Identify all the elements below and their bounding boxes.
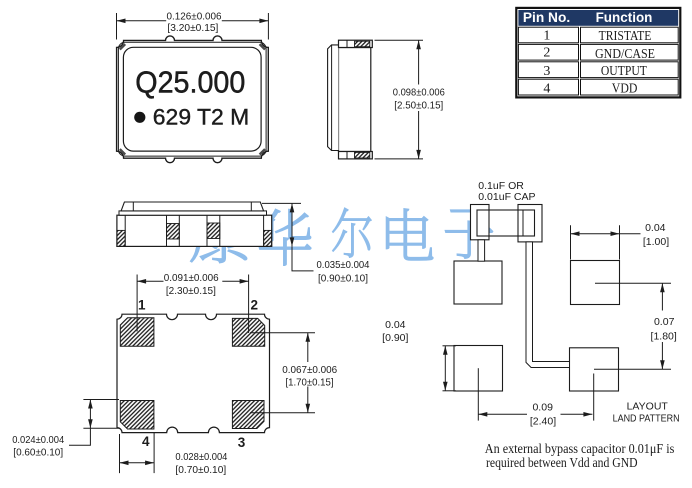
- svg-text:Function: Function: [596, 10, 653, 25]
- svg-text:0.01uF CAP: 0.01uF CAP: [478, 191, 535, 203]
- svg-text:0.07: 0.07: [654, 316, 675, 328]
- svg-text:0.126±0.006: 0.126±0.006: [167, 10, 222, 22]
- svg-text:0.035±0.004: 0.035±0.004: [317, 259, 370, 271]
- svg-text:3: 3: [543, 64, 550, 79]
- svg-text:[1.00]: [1.00]: [643, 236, 669, 248]
- svg-text:1: 1: [138, 298, 146, 313]
- svg-text:[2.40]: [2.40]: [530, 416, 556, 428]
- svg-text:Q25.000: Q25.000: [135, 66, 245, 100]
- svg-text:OUTPUT: OUTPUT: [601, 64, 647, 79]
- svg-text:required between Vdd and GND: required between Vdd and GND: [486, 455, 638, 470]
- svg-text:LAND PATTERN: LAND PATTERN: [613, 413, 680, 425]
- svg-text:2: 2: [251, 298, 259, 313]
- svg-text:[0.90]: [0.90]: [382, 332, 408, 344]
- svg-text:VDD: VDD: [612, 81, 638, 96]
- svg-text:[1.70±0.15]: [1.70±0.15]: [286, 376, 334, 388]
- svg-text:1: 1: [543, 28, 550, 43]
- svg-text:0.067±0.006: 0.067±0.006: [282, 364, 337, 376]
- svg-text:[3.20±0.15]: [3.20±0.15]: [167, 22, 218, 34]
- svg-text:629 T2 M: 629 T2 M: [153, 105, 249, 130]
- svg-text:0.098±0.006: 0.098±0.006: [393, 86, 445, 98]
- svg-text:[2.30±0.15]: [2.30±0.15]: [166, 285, 216, 297]
- svg-text:4: 4: [142, 434, 150, 449]
- svg-text:3: 3: [238, 435, 246, 450]
- svg-text:0.024±0.004: 0.024±0.004: [12, 434, 64, 446]
- svg-text:GND/CASE: GND/CASE: [595, 47, 655, 62]
- svg-text:0.091±0.006: 0.091±0.006: [164, 272, 219, 284]
- svg-text:[0.60±0.10]: [0.60±0.10]: [13, 446, 63, 458]
- svg-text:0.04: 0.04: [385, 319, 406, 331]
- svg-text:[2.50±0.15]: [2.50±0.15]: [394, 99, 443, 111]
- svg-text:[1.80]: [1.80]: [651, 330, 677, 342]
- svg-text:[0.90±0.10]: [0.90±0.10]: [318, 273, 368, 285]
- svg-text:4: 4: [543, 81, 550, 96]
- svg-text:[0.70±0.10]: [0.70±0.10]: [175, 464, 226, 476]
- svg-text:0.028±0.004: 0.028±0.004: [175, 451, 227, 463]
- svg-text:LAYOUT: LAYOUT: [627, 400, 669, 412]
- svg-text:0.09: 0.09: [532, 402, 553, 414]
- svg-text:TRISTATE: TRISTATE: [599, 29, 652, 44]
- svg-text:An external bypass capacitor 0: An external bypass capacitor 0.01μF is: [485, 441, 675, 456]
- svg-text:0.04: 0.04: [645, 222, 666, 234]
- svg-text:2: 2: [543, 46, 550, 61]
- svg-text:Pin No.: Pin No.: [523, 10, 570, 25]
